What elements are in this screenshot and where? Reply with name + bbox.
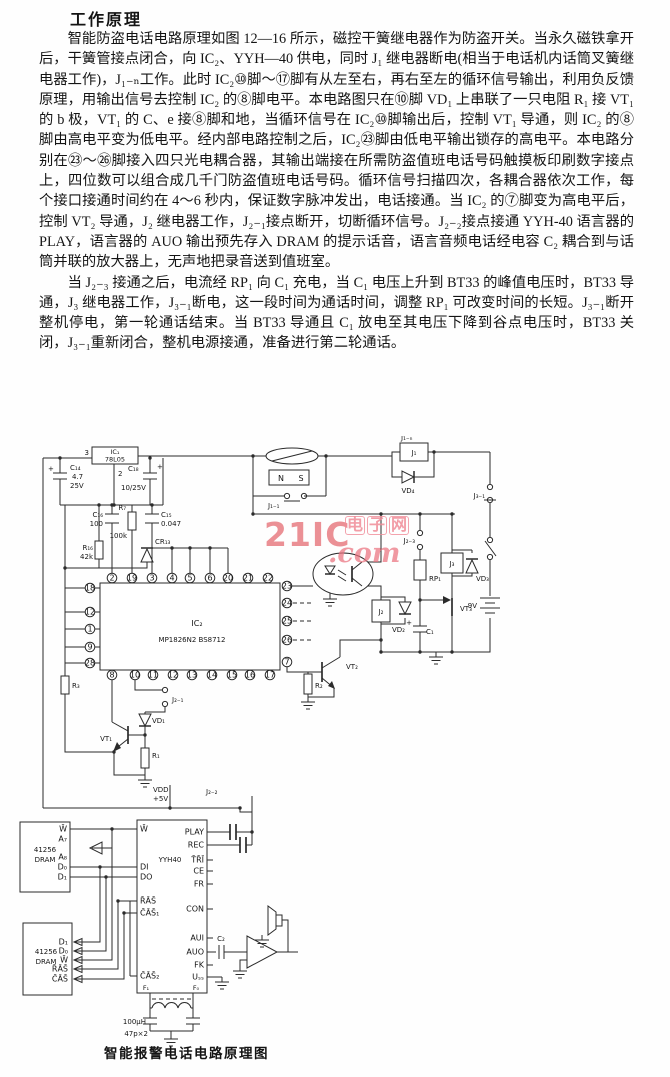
body-text: 智能防盗电话电路原理如图 12—16 所示，磁控干簧继电器作为防盗开关。当永久磁… (39, 29, 634, 354)
label-yyh40-f0: F₀ (193, 984, 200, 992)
ic2-pin-number: 11 (148, 670, 158, 679)
ic2-pin-number: 22 (263, 573, 273, 582)
yyh40-left-pin-label: C̄ĀS̄₂ (140, 970, 159, 980)
label-dram1-name: 41256 (34, 846, 57, 854)
resistor-r2 (304, 674, 312, 694)
rp1-pot (414, 560, 426, 580)
circuit-schematic: 2193456202122810111213141516171812192823… (0, 436, 670, 1052)
yyh40-right-pin-label: T̄R̄Ī (190, 854, 204, 864)
yyh40-right-pin-label: AUI (190, 934, 204, 943)
ic2-pin-number: 20 (223, 573, 233, 582)
yyh40-left-pin-label: DI (140, 863, 149, 872)
speaker-icon (268, 906, 282, 935)
capacitor-plates (53, 473, 427, 1024)
label-osc-l: 100μH (123, 1018, 146, 1026)
ic2-pin-number: 7 (284, 657, 289, 666)
junction-dots (58, 450, 453, 914)
figure-caption: 智能报警电话电路原理图 (104, 1042, 269, 1062)
resistor-r1 (141, 748, 149, 768)
label-j1: J₁ (411, 449, 417, 457)
ic2-pin-number: 21 (243, 573, 253, 582)
ic2-pin-number: 15 (227, 670, 237, 679)
label-vd1: VD₁ (152, 717, 165, 725)
diode-vd2 (399, 602, 411, 614)
ic2-pin-number: 10 (130, 670, 140, 679)
label-osc-c: 47p×2 (124, 1030, 148, 1038)
label-r2: R₂ (315, 682, 323, 690)
diode-vd3 (466, 559, 478, 573)
label-c2: C₂ (217, 935, 225, 943)
label-c16-value: 100 (90, 520, 103, 528)
diode-cr13 (141, 548, 153, 562)
ic2-pin-number: 2 (109, 573, 114, 582)
label-r7-value: 100k (110, 532, 128, 540)
ic2-pin-number: 19 (127, 573, 137, 582)
ic2-pin-number: 25 (282, 616, 292, 625)
label-c15-value: 0.047 (161, 520, 181, 528)
vt2-emitter-arrow (328, 681, 335, 689)
ic2-pin-number: 14 (207, 670, 217, 679)
label-c14-plus: + (48, 465, 54, 473)
label-yyh40: YYH40 (158, 856, 182, 864)
j2-2-contact-bars (230, 824, 246, 853)
dram1-pin-label: A₇ (58, 835, 67, 844)
ic2-pin-number: 4 (169, 573, 174, 582)
ic2-pin-number: 23 (282, 581, 292, 590)
label-j1-1: J₁₋₁ (267, 502, 280, 510)
label-ic1-part: 78L05 (105, 456, 125, 464)
yyh40-right-pin-label: FK (194, 961, 205, 970)
label-plus5v: +5V (153, 795, 168, 803)
amplifier (247, 936, 277, 968)
opto-coupler (313, 553, 373, 595)
dram2-pin-label: C̄ĀS̄ (52, 973, 68, 983)
dram2-pin-label: W̄ (60, 954, 68, 964)
label-dram1-type: DRAM (35, 856, 56, 864)
dram1-pin-label: W̄ (59, 823, 67, 833)
ic2-pin-number: 28 (85, 658, 95, 667)
resistor-r16 (95, 541, 103, 559)
ic2-pin-number: 6 (207, 573, 212, 582)
label-c1: C₁ (426, 628, 434, 636)
dram1-pin-label: D₀ (58, 863, 67, 872)
label-r16: R₁₆ (83, 544, 94, 552)
label-c14-v1: 4.7 (72, 473, 83, 481)
yyh40-right-pin-label: PLAY (185, 828, 204, 837)
yyh40-left-pin-label: DO (140, 873, 152, 882)
label-yyh40-f1: F₁ (143, 984, 150, 992)
label-ic1-pin2: 2 (118, 470, 122, 478)
label-c1-plus: + (406, 619, 412, 627)
yyh40-right-pin-label: CON (186, 905, 204, 914)
dram1-pin-label: A₈ (58, 853, 67, 862)
ic2-pin-number: 17 (265, 670, 275, 679)
label-vd2: VD₂ (392, 626, 405, 634)
label-c16: C₁₆ (93, 511, 104, 519)
ic2-box (100, 583, 280, 670)
yyh40-right-pin-label: AUO (186, 948, 204, 957)
label-c15: C₁₅ (161, 511, 172, 519)
ic2-pin-number: 1 (87, 624, 92, 633)
label-vd4: VD₄ (402, 487, 415, 495)
bus-arrows (74, 842, 102, 983)
body-paragraph-1: 智能防盗电话电路原理如图 12—16 所示，磁控干簧继电器作为防盗开关。当永久磁… (39, 29, 634, 273)
label-vt3: VT₃ (460, 605, 472, 613)
label-rp1: RP₁ (429, 575, 441, 583)
yyh40-right-pin-label: FR (194, 880, 205, 889)
resistor-r3 (61, 676, 69, 694)
label-dram2-type: DRAM (36, 958, 57, 966)
ic2-pin-number: 16 (245, 670, 255, 679)
label-magnet-n: N (278, 474, 284, 483)
ic2-pin-number: 18 (85, 583, 95, 592)
yyh40-left-pin-label: W̄ (140, 823, 148, 833)
body-paragraph-2: 当 J₂₋₃ 接通之后，电流经 RP₁ 向 C₁ 充电，当 C₁ 电压上升到 B… (39, 273, 634, 354)
battery-9v (480, 598, 500, 613)
label-c18-value: 10/25V (121, 484, 146, 492)
label-j2-1: J₂₋₁ (171, 696, 184, 704)
label-cr13: CR₁₃ (155, 538, 171, 546)
label-ic2: IC₂ (191, 619, 202, 628)
label-magnet-s: S (298, 474, 303, 483)
label-r16-value: 42k (80, 553, 94, 561)
vt3-emitter-arrow (443, 596, 451, 604)
ic2-pin-number: 26 (282, 635, 292, 644)
yyh40-right-pin-label: CE (193, 867, 204, 876)
label-j3: J₃ (449, 560, 455, 568)
label-c14-v2: 25V (70, 482, 84, 490)
yyh40-left-pin-label: R̄ĀS̄ (140, 895, 156, 905)
resistor-r7 (128, 512, 136, 530)
label-ic1-pin3: 3 (85, 449, 89, 457)
yyh40-right-pin-label: REC (188, 841, 205, 850)
label-j2: J₂ (378, 608, 384, 616)
label-c14: C₁₄ (70, 464, 81, 472)
label-j1-n: J₁₋ₙ (400, 436, 413, 442)
label-vdd: VDD (153, 786, 169, 794)
ic2-pin-number: 12 (168, 670, 178, 679)
inductor-coil (152, 1003, 191, 1008)
label-ic2-part: MP1826N2 BS8712 (159, 636, 226, 644)
dram2-pin-label: D₁ (59, 938, 68, 947)
ic2-pin-number: 13 (187, 670, 197, 679)
dram2-pin-label: D₀ (59, 947, 68, 956)
label-r7: R₇ (118, 504, 126, 512)
ic2-pin-number: 24 (282, 598, 292, 607)
label-r1: R₁ (152, 752, 160, 760)
diode-vd1 (139, 714, 151, 726)
label-j3-1: J₃₋₁ (473, 492, 486, 500)
ic2-pin-number: 8 (109, 670, 114, 679)
ic2-pin-number: 12 (85, 607, 95, 616)
label-j2-2: J₂₋₂ (205, 788, 218, 796)
label-r3: R₃ (72, 682, 80, 690)
yyh40-right-pin-label: Uₛₛ (192, 973, 204, 982)
label-vt2: VT₂ (346, 663, 358, 671)
component-boxes (20, 443, 463, 995)
label-c18-plus: + (157, 463, 163, 471)
label-c18: C₁₈ (128, 465, 139, 473)
dram1-pin-label: D₁ (58, 873, 67, 882)
label-j2-3: J₂₋₃ (403, 537, 416, 545)
ic2-pin-number: 9 (87, 642, 92, 651)
label-dram2-name: 41256 (35, 948, 58, 956)
label-vd3: VD₃ (476, 575, 489, 583)
page-title: 工作原理 (70, 6, 142, 30)
reed-switch (266, 448, 318, 464)
yyh40-left-pin-label: C̄ĀS̄₁ (140, 907, 159, 917)
ic2-pin-number: 3 (149, 573, 154, 582)
diode-vd4 (402, 471, 414, 483)
label-vt1: VT₁ (100, 735, 112, 743)
contact-strokes (284, 500, 496, 556)
ic2-pin-number: 5 (187, 573, 192, 582)
